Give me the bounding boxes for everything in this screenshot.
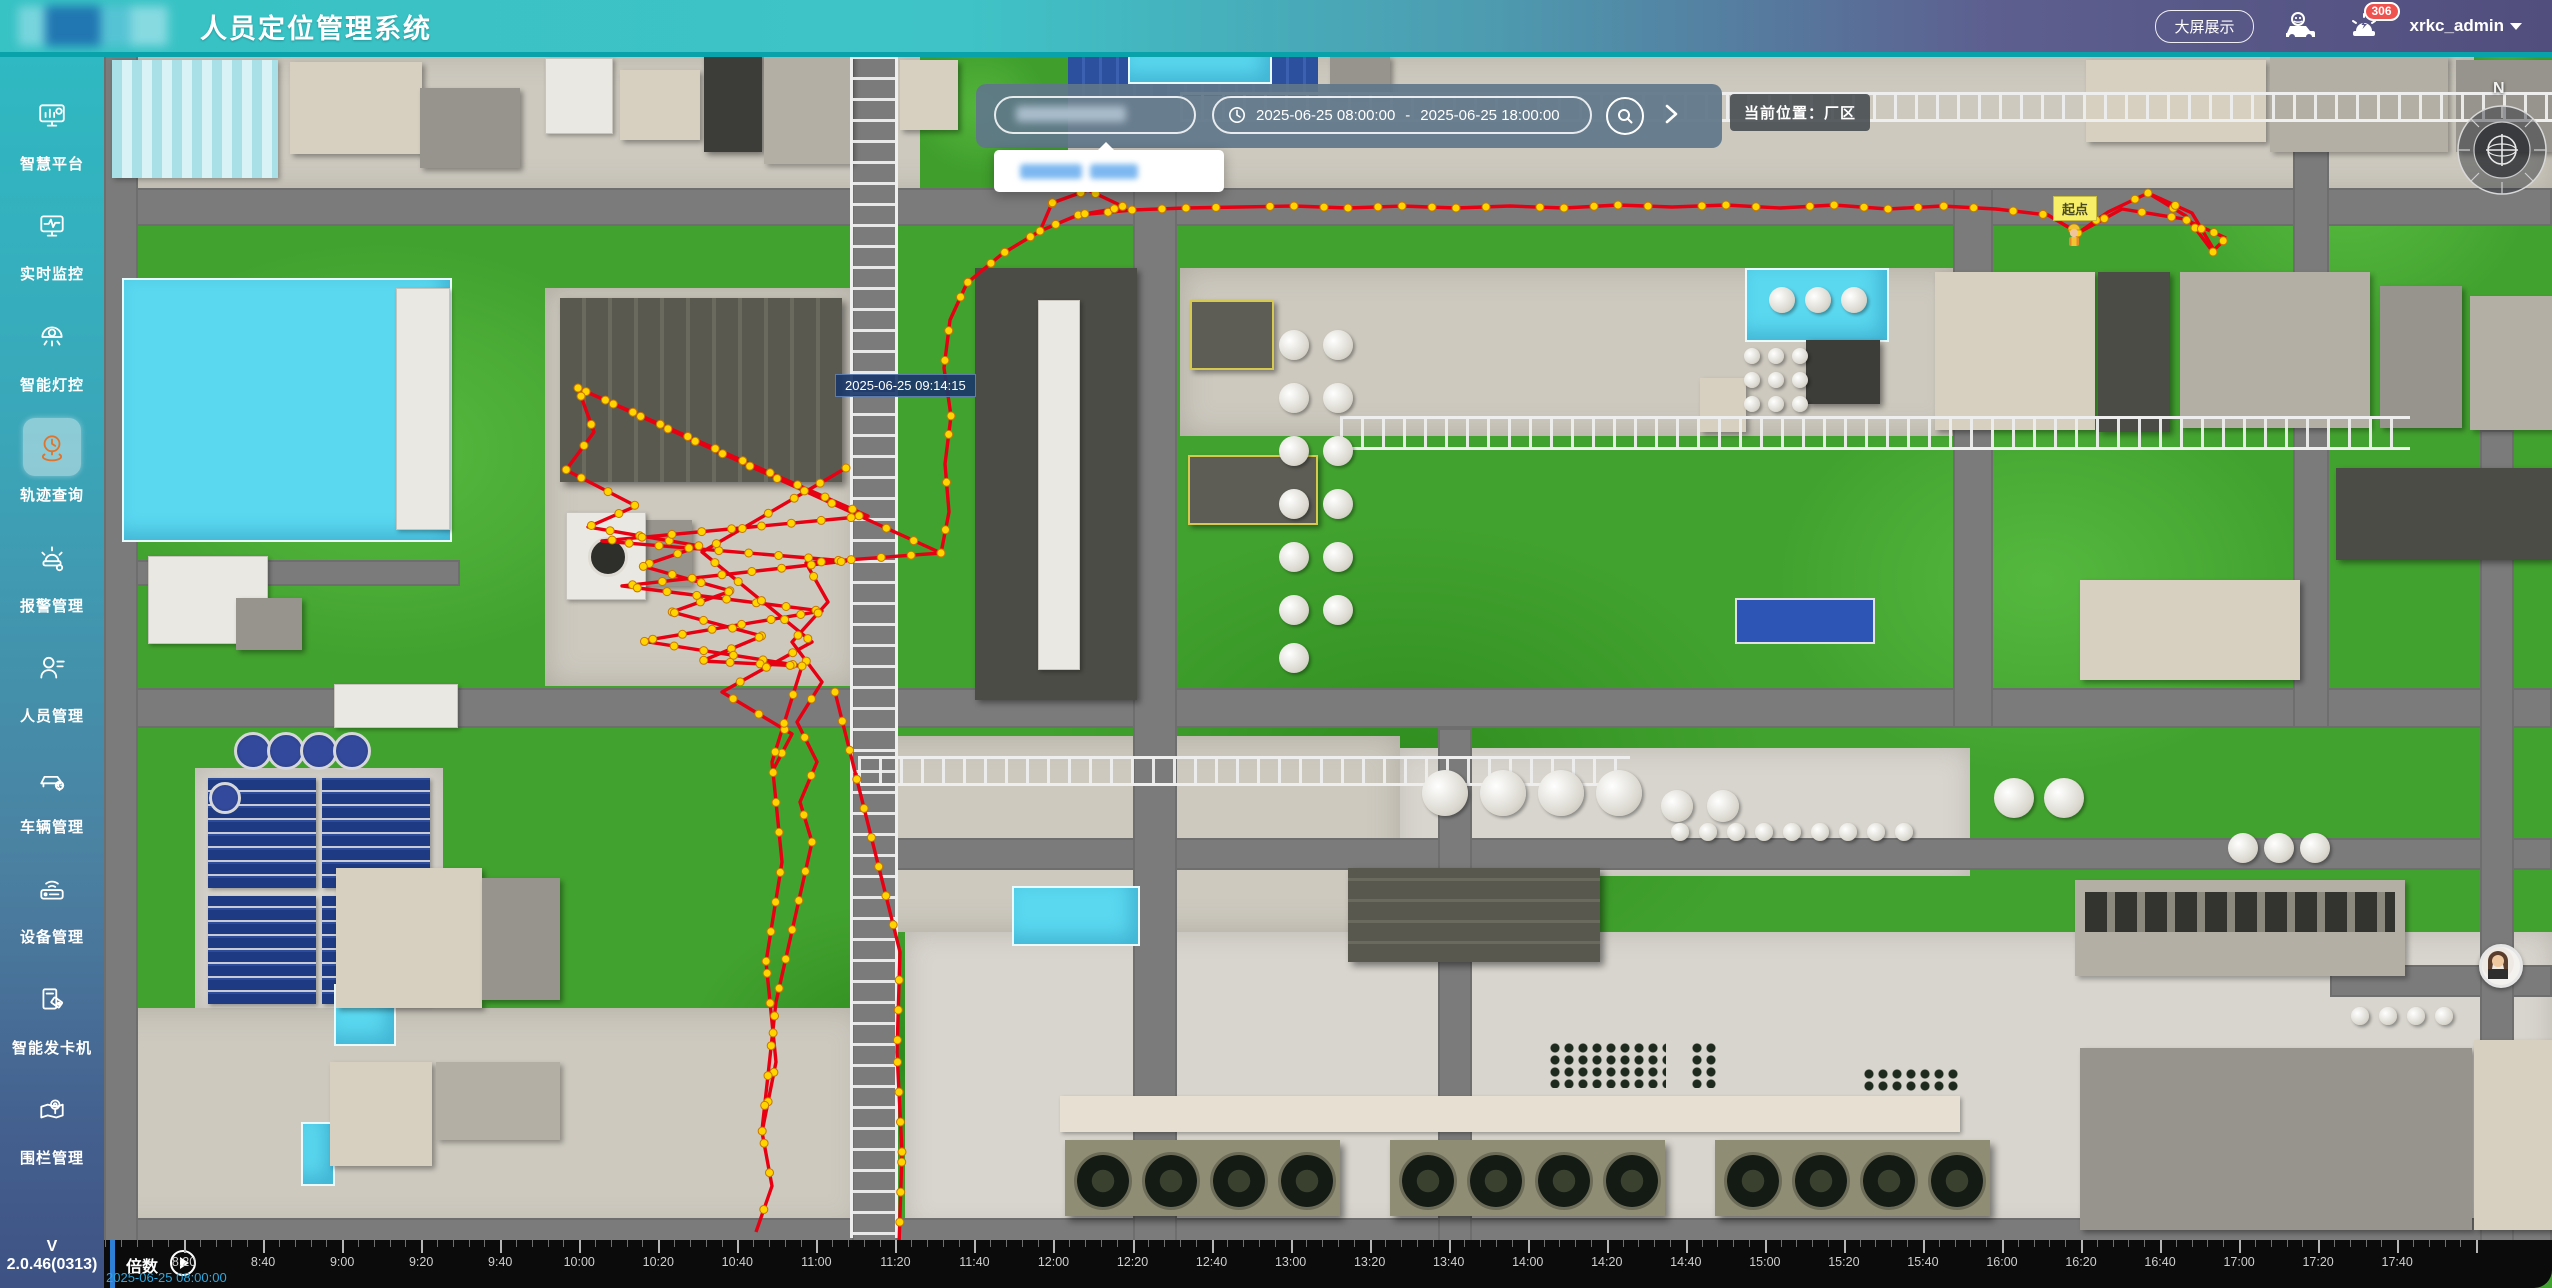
map-structure xyxy=(333,732,371,770)
map-structure xyxy=(236,598,302,650)
sidebar-item-label: 实时监控 xyxy=(20,263,84,284)
timeline-tick xyxy=(358,1240,359,1247)
timeline-tick-label: 10:20 xyxy=(643,1255,674,1269)
map-structure xyxy=(1480,770,1526,816)
timeline-tick xyxy=(2302,1240,2303,1247)
map-structure xyxy=(104,188,2552,226)
timeline-tick-label: 13:20 xyxy=(1354,1255,1385,1269)
timeline-tick xyxy=(1180,1240,1181,1247)
map-structure xyxy=(482,878,560,1000)
monitor-icon xyxy=(23,197,81,255)
timeline-tick xyxy=(1733,1240,1734,1247)
timeline-tick xyxy=(231,1240,232,1247)
map-structure xyxy=(1279,643,1309,673)
timeline-tick xyxy=(421,1240,423,1253)
date-range-picker[interactable]: 2025-06-25 08:00:00 - 2025-06-25 18:00:0… xyxy=(1212,96,1592,134)
timeline-tick-label: 13:00 xyxy=(1275,1255,1306,1269)
sidebar: 智慧平台实时监控智能灯控轨迹查询报警管理人员管理车辆管理设备管理智能发卡机围栏管… xyxy=(0,57,104,1288)
map-structure xyxy=(1841,287,1867,313)
timeline-tick xyxy=(2271,1240,2272,1247)
search-suggestion-dropdown[interactable] xyxy=(994,150,1224,192)
map-structure xyxy=(104,52,138,1288)
timeline-tick xyxy=(484,1240,485,1247)
timeline-tick xyxy=(1480,1240,1481,1247)
timeline-tick xyxy=(1133,1240,1135,1253)
timeline-tick xyxy=(184,1240,186,1253)
timeline-tick-label: 12:20 xyxy=(1117,1255,1148,1269)
timeline-tick xyxy=(1227,1240,1228,1247)
timeline-tick xyxy=(611,1240,612,1247)
timeline-tick xyxy=(405,1240,406,1247)
timeline-tick-label: 9:20 xyxy=(409,1255,433,1269)
map-structure xyxy=(436,1062,560,1140)
timeline-tick xyxy=(1702,1240,1703,1247)
timeline-tick xyxy=(864,1240,865,1247)
map-structure xyxy=(1348,868,1600,962)
map-structure xyxy=(1811,823,1829,841)
timeline-tick xyxy=(959,1240,960,1247)
timeline-tick xyxy=(1275,1240,1276,1247)
timeline-tick xyxy=(1433,1240,1434,1247)
timeline-tick xyxy=(1670,1240,1671,1247)
sidebar-item-label: 人员管理 xyxy=(20,705,84,726)
timeline-tick xyxy=(1322,1240,1323,1247)
sidebar-item-fence[interactable]: 围栏管理 xyxy=(4,1081,100,1168)
timeline-tick xyxy=(1607,1240,1609,1253)
timeline-tick xyxy=(1164,1240,1165,1247)
timeline-tick-label: 17:20 xyxy=(2302,1255,2333,1269)
timeline-tick xyxy=(1006,1240,1007,1247)
header-accent-strip xyxy=(0,52,2552,57)
timeline-tick-label: 11:20 xyxy=(880,1255,910,1269)
timeline-tick-label: 14:00 xyxy=(1512,1255,1543,1269)
date-separator: - xyxy=(1405,107,1410,124)
timeline-tick xyxy=(769,1240,770,1247)
timeline-tick xyxy=(753,1240,754,1247)
timeline-tick xyxy=(2223,1240,2224,1247)
sidebar-item-card-machine[interactable]: 智能发卡机 xyxy=(4,971,100,1058)
timeline-tick-label: 11:00 xyxy=(801,1255,831,1269)
timeline-tick-label: 17:00 xyxy=(2223,1255,2254,1269)
timeline-tick xyxy=(880,1240,881,1247)
timeline-tick xyxy=(1781,1240,1782,1247)
sidebar-item-label: 车辆管理 xyxy=(20,816,84,837)
map-structure xyxy=(2351,1007,2369,1025)
timeline-tick xyxy=(1338,1240,1339,1247)
timeline-tick xyxy=(263,1240,265,1253)
map-structure xyxy=(336,868,482,1008)
map-structure xyxy=(104,688,2552,728)
map-structure xyxy=(209,782,241,814)
timeline-tick xyxy=(927,1240,928,1247)
sidebar-item-track[interactable]: 轨迹查询 xyxy=(4,418,100,505)
company-logo xyxy=(18,6,168,46)
timeline-tick xyxy=(1496,1240,1497,1247)
timeline-tick xyxy=(595,1240,596,1247)
timeline-tick xyxy=(2144,1240,2145,1247)
sidebar-item-platform[interactable]: 智慧平台 xyxy=(4,87,100,174)
timeline-tick xyxy=(974,1240,976,1253)
timeline-tick xyxy=(2018,1240,2019,1247)
timeline-tick xyxy=(1828,1240,1829,1247)
alarm-count-badge: 306 xyxy=(2364,2,2400,21)
timeline-tick xyxy=(1939,1240,1940,1247)
username: xrkc_admin xyxy=(2410,16,2505,36)
map-structure xyxy=(588,537,628,577)
map-structure xyxy=(396,288,450,530)
map-structure xyxy=(1744,372,1760,388)
fence-icon xyxy=(23,1081,81,1139)
trajectory-time-tooltip: 2025-06-25 09:14:15 xyxy=(835,374,976,397)
timeline-tick-label: 10:40 xyxy=(722,1255,753,1269)
timeline-tick xyxy=(2381,1240,2382,1247)
timeline-tick xyxy=(2176,1240,2177,1247)
map-structure xyxy=(1792,1152,1850,1210)
timeline-tick xyxy=(2002,1240,2004,1253)
map-structure xyxy=(2228,833,2258,863)
timeline-tick-label: 12:00 xyxy=(1038,1255,1069,1269)
map-structure xyxy=(1323,383,1353,413)
timeline-tick xyxy=(1212,1240,1214,1253)
vehicle-icon[interactable] xyxy=(2282,10,2318,42)
timeline-tick xyxy=(216,1240,217,1247)
timeline-tick xyxy=(2397,1240,2399,1253)
map-structure xyxy=(1603,1152,1661,1210)
map-structure xyxy=(1699,823,1717,841)
timeline-tick xyxy=(658,1240,660,1253)
map-structure xyxy=(334,684,458,728)
timeline-tick xyxy=(1512,1240,1513,1247)
map-structure xyxy=(1279,330,1309,360)
map-structure xyxy=(1323,595,1353,625)
timeline-tick-label: 14:40 xyxy=(1670,1255,1701,1269)
map-structure xyxy=(1190,300,1274,370)
timeline-tick xyxy=(500,1240,502,1253)
timeline-tick xyxy=(1101,1240,1102,1247)
map-structure xyxy=(1279,489,1309,519)
timeline-tick xyxy=(1401,1240,1402,1247)
timeline-tick xyxy=(2049,1240,2050,1247)
map-structure xyxy=(1012,886,1140,946)
timeline-tick xyxy=(374,1240,375,1247)
timeline-tick xyxy=(785,1240,786,1247)
map-structure xyxy=(850,56,898,1238)
timeline-tick xyxy=(1575,1240,1576,1247)
timeline-tick xyxy=(1654,1240,1655,1247)
map-structure xyxy=(1928,1152,1986,1210)
map-structure xyxy=(545,58,613,134)
timeline-tick xyxy=(563,1240,564,1247)
timeline-tick xyxy=(706,1240,707,1247)
device-icon xyxy=(23,860,81,918)
map-structure xyxy=(1323,542,1353,572)
timeline-tick-label: 14:20 xyxy=(1591,1255,1622,1269)
map-structure xyxy=(620,70,700,140)
timeline-tick xyxy=(895,1240,897,1253)
timeline-tick xyxy=(2287,1240,2288,1247)
timeline-tick xyxy=(168,1240,169,1247)
timeline-tick xyxy=(1907,1240,1908,1247)
app-header: 人员定位管理系统 大屏展示 306 xyxy=(0,0,2552,52)
timeline-tick-label: 17:40 xyxy=(2382,1255,2413,1269)
timeline-tick xyxy=(642,1240,643,1247)
map-structure xyxy=(1038,300,1080,670)
timeline-tick xyxy=(2318,1240,2320,1253)
timeline-tick xyxy=(2476,1240,2478,1253)
map-structure xyxy=(1724,1152,1782,1210)
timeline-tick xyxy=(437,1240,438,1247)
timeline-tick xyxy=(1053,1240,1055,1253)
timeline-tick xyxy=(1464,1240,1465,1247)
sidebar-item-label: 报警管理 xyxy=(20,595,84,616)
timeline-tick xyxy=(943,1240,944,1247)
timeline-tick-label: 9:00 xyxy=(330,1255,354,1269)
timeline-tick xyxy=(2366,1240,2367,1247)
timeline-tick xyxy=(1117,1240,1118,1247)
timeline-tick xyxy=(990,1240,991,1247)
timeline-tick-label: 8:20 xyxy=(172,1255,196,1269)
alarm-icon[interactable]: 306 xyxy=(2346,10,2382,42)
map-structure xyxy=(1707,790,1739,822)
timeline-tick xyxy=(532,1240,533,1247)
map-structure xyxy=(330,1062,432,1166)
map-structure xyxy=(2379,1007,2397,1025)
map-structure xyxy=(900,60,958,130)
map-structure xyxy=(1399,1152,1457,1210)
user-menu[interactable]: xrkc_admin xyxy=(2410,16,2523,36)
timeline-tick xyxy=(2097,1240,2098,1247)
timeline-tick xyxy=(469,1240,470,1247)
map-structure xyxy=(1792,396,1808,412)
timeline-tick xyxy=(121,1240,122,1247)
timeline-tick xyxy=(1148,1240,1149,1247)
map-structure xyxy=(1935,272,2095,430)
timeline-tick xyxy=(1022,1240,1023,1247)
timeline-tick-label: 8:40 xyxy=(251,1255,275,1269)
sidebar-item-alarm-manage[interactable]: 报警管理 xyxy=(4,529,100,616)
timeline-tick xyxy=(1528,1240,1530,1253)
map-structure xyxy=(1279,595,1309,625)
redacted-search-text xyxy=(1016,106,1126,122)
timeline-tick xyxy=(247,1240,248,1247)
search-icon xyxy=(1615,106,1635,126)
playback-current-time: 2025-06-25 08:00:00 xyxy=(106,1270,227,1285)
compass-control[interactable] xyxy=(2456,104,2548,201)
timeline-tick xyxy=(722,1240,723,1247)
map-structure xyxy=(1535,1152,1593,1210)
map-structure xyxy=(1279,542,1309,572)
timeline-tick xyxy=(2128,1240,2129,1247)
timeline-tick xyxy=(737,1240,739,1253)
map-structure xyxy=(1323,330,1353,360)
map-structure xyxy=(1596,770,1642,816)
timeline-tick xyxy=(1196,1240,1197,1247)
playback-timeline[interactable]: 倍数 2025-06-25 08:00:00 8:208:409:009:209… xyxy=(104,1240,2552,1288)
sidebar-item-label: 智能灯控 xyxy=(20,374,84,395)
timeline-tick xyxy=(627,1240,628,1247)
timeline-tick xyxy=(1749,1240,1750,1247)
caret-down-icon xyxy=(2510,23,2522,30)
map-structure xyxy=(1768,372,1784,388)
map-structure xyxy=(764,52,852,164)
map-structure xyxy=(860,838,2552,870)
timeline-tick-label: 10:00 xyxy=(564,1255,595,1269)
play-forward-button[interactable] xyxy=(1656,97,1686,131)
sidebar-item-label: 围栏管理 xyxy=(20,1147,84,1168)
map-structure xyxy=(420,88,520,168)
timeline-tick xyxy=(105,1240,106,1247)
map-structure xyxy=(1727,823,1745,841)
timeline-tick xyxy=(1623,1240,1624,1247)
current-location-label: 当前位置：厂区 xyxy=(1730,94,1870,131)
map-structure xyxy=(1278,1152,1336,1210)
map-structure xyxy=(1806,340,1880,404)
map-structure xyxy=(1735,598,1875,644)
timeline-tick-label: 15:20 xyxy=(1828,1255,1859,1269)
map-structure xyxy=(1548,1042,1666,1088)
map-structure xyxy=(2080,1048,2472,1230)
timeline-tick-label: 16:20 xyxy=(2065,1255,2096,1269)
date-start[interactable]: 2025-06-25 08:00:00 xyxy=(1256,107,1395,124)
timeline-tick-label: 11:40 xyxy=(959,1255,989,1269)
timeline-tick xyxy=(1844,1240,1846,1253)
timeline-tick xyxy=(2350,1240,2351,1247)
map-structure xyxy=(1279,436,1309,466)
map-structure xyxy=(1422,770,1468,816)
map-structure xyxy=(2098,272,2170,432)
app-title: 人员定位管理系统 xyxy=(200,7,432,46)
clock-icon xyxy=(1228,106,1246,124)
map-structure xyxy=(2180,272,2370,428)
map-structure xyxy=(1690,1042,1718,1088)
timeline-tick-label: 13:40 xyxy=(1433,1255,1464,1269)
personnel-avatar-marker[interactable] xyxy=(2479,944,2523,988)
lamp-icon xyxy=(23,308,81,366)
map-structure xyxy=(1661,790,1693,822)
timeline-tick xyxy=(1955,1240,1956,1247)
map-structure xyxy=(2380,286,2462,428)
timeline-tick xyxy=(1417,1240,1418,1247)
timeline-tick xyxy=(295,1240,296,1247)
map-structure xyxy=(2080,580,2300,680)
date-end[interactable]: 2025-06-25 18:00:00 xyxy=(1420,107,1559,124)
timeline-tick xyxy=(1038,1240,1039,1247)
worker-marker-icon[interactable] xyxy=(2064,222,2084,255)
timeline-tick xyxy=(2065,1240,2066,1247)
timeline-tick xyxy=(2413,1240,2414,1247)
timeline-tick xyxy=(2429,1240,2430,1247)
timeline-tick xyxy=(2160,1240,2162,1253)
timeline-tick xyxy=(1306,1240,1307,1247)
map-structure xyxy=(1323,436,1353,466)
app-window: 2025-06-25 08:00:00 - 2025-06-25 18:00:0… xyxy=(0,0,2552,1288)
sidebar-item-lamp[interactable]: 智能灯控 xyxy=(4,308,100,395)
map-structure xyxy=(1839,823,1857,841)
timeline-tick xyxy=(816,1240,818,1253)
sidebar-item-label: 智能发卡机 xyxy=(12,1037,92,1058)
map-structure xyxy=(1744,348,1760,364)
platform-icon xyxy=(23,87,81,145)
timeline-tick xyxy=(1370,1240,1372,1253)
map-structure xyxy=(2336,468,2552,560)
map-structure xyxy=(1862,1068,1958,1092)
sidebar-item-device[interactable]: 设备管理 xyxy=(4,860,100,947)
compass-north-label: N xyxy=(2493,80,2505,98)
timeline-tick xyxy=(1796,1240,1797,1247)
timeline-tick xyxy=(137,1240,138,1247)
map-structure xyxy=(1768,348,1784,364)
map-structure xyxy=(1340,416,2410,450)
map-structure xyxy=(2470,296,2552,430)
timeline-tick xyxy=(1923,1240,1925,1253)
timeline-tick xyxy=(2113,1240,2114,1247)
sidebar-item-vehicle-manage[interactable]: 车辆管理 xyxy=(4,750,100,837)
map-structure xyxy=(1210,1152,1268,1210)
timeline-tick-label: 9:40 xyxy=(488,1255,512,1269)
timeline-tick xyxy=(152,1240,153,1247)
timeline-tick xyxy=(848,1240,849,1247)
timeline-tick-label: 12:40 xyxy=(1196,1255,1227,1269)
card-machine-icon xyxy=(23,971,81,1029)
timeline-tick xyxy=(279,1240,280,1247)
timeline-tick xyxy=(342,1240,344,1253)
timeline-tick xyxy=(674,1240,675,1247)
timeline-tick-label: 15:00 xyxy=(1749,1255,1780,1269)
timeline-tick-label: 16:40 xyxy=(2144,1255,2175,1269)
timeline-tick xyxy=(579,1240,581,1253)
locate-search-button[interactable] xyxy=(1606,97,1644,135)
alarm-manage-icon xyxy=(23,529,81,587)
sidebar-item-person[interactable]: 人员管理 xyxy=(4,639,100,726)
timeline-tick xyxy=(1638,1240,1639,1247)
sidebar-item-label: 智慧平台 xyxy=(20,153,84,174)
map-structure xyxy=(1671,823,1689,841)
timeline-tick xyxy=(453,1240,454,1247)
timeline-tick xyxy=(2255,1240,2256,1247)
timeline-tick xyxy=(1891,1240,1892,1247)
timeline-tick xyxy=(2034,1240,2035,1247)
timeline-tick xyxy=(1717,1240,1718,1247)
map-structure xyxy=(1994,778,2034,818)
map-structure xyxy=(1792,372,1808,388)
timeline-tick xyxy=(1385,1240,1386,1247)
map-structure xyxy=(1142,1152,1200,1210)
timeline-tick xyxy=(1765,1240,1767,1253)
big-screen-button[interactable]: 大屏展示 xyxy=(2155,10,2253,43)
sidebar-item-monitor[interactable]: 实时监控 xyxy=(4,197,100,284)
timeline-tick xyxy=(1986,1240,1987,1247)
timeline-tick xyxy=(1243,1240,1244,1247)
map-structure xyxy=(1805,287,1831,313)
track-icon xyxy=(23,418,81,476)
timeline-tick xyxy=(1354,1240,1355,1247)
timeline-tick-label: 15:40 xyxy=(1907,1255,1938,1269)
map-structure xyxy=(1279,383,1309,413)
timeline-tick xyxy=(2239,1240,2241,1253)
redacted-suggestion-text xyxy=(1090,164,1138,179)
timeline-tick xyxy=(690,1240,691,1247)
timeline-tick xyxy=(200,1240,201,1247)
timeline-tick xyxy=(1259,1240,1260,1247)
timeline-tick xyxy=(1544,1240,1545,1247)
map-structure xyxy=(1792,348,1808,364)
redacted-suggestion-text xyxy=(1020,164,1082,179)
sidebar-item-label: 设备管理 xyxy=(20,926,84,947)
map-structure xyxy=(208,896,316,1004)
timeline-tick xyxy=(2192,1240,2193,1247)
map-canvas[interactable] xyxy=(0,0,2552,1288)
vehicle-manage-icon xyxy=(23,750,81,808)
